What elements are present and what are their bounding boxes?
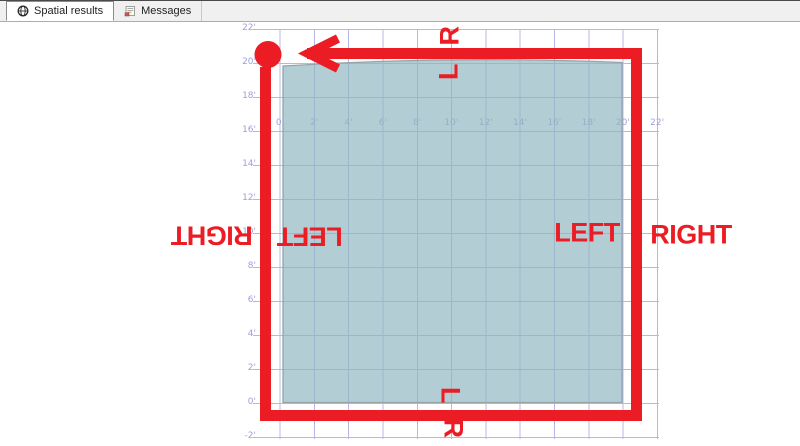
y-axis-label: 6' — [230, 295, 256, 306]
x-axis-label: 10' — [436, 118, 466, 129]
x-axis-label: 20' — [608, 118, 638, 129]
spatial-viewport[interactable]: 0' 2' 4' 6' 8' 10' 12' 14' 16' 18' 20' 2… — [0, 22, 800, 446]
top-inside-letter: L — [436, 64, 463, 80]
spatial-results-window: Spatial results Messages 0' 2' 4' 6' 8' … — [0, 0, 800, 446]
right-outside-label: RIGHT — [650, 222, 732, 249]
y-axis-label: 12' — [230, 193, 256, 204]
top-outside-letter: R — [437, 27, 464, 46]
messages-icon — [124, 5, 136, 17]
x-axis-label: 14' — [505, 118, 535, 129]
bottom-outside-letter: R — [440, 419, 467, 438]
x-axis-label: 2' — [299, 118, 329, 129]
y-axis-label: 22' — [230, 23, 256, 34]
x-axis-label: 4' — [334, 118, 364, 129]
right-inside-label: LEFT — [554, 220, 620, 247]
x-axis-label: 6' — [368, 118, 398, 129]
x-axis-label: 12' — [471, 118, 501, 129]
x-axis-label: 8' — [402, 118, 432, 129]
tab-label: Spatial results — [34, 5, 103, 17]
tab-label: Messages — [141, 5, 191, 17]
y-axis-label: 0' — [230, 397, 256, 408]
y-axis-label: 20' — [230, 57, 256, 68]
y-axis-label: 16' — [230, 125, 256, 136]
left-inside-label: LEFT — [277, 223, 343, 250]
y-axis-label: 4' — [230, 329, 256, 340]
tab-spatial-results[interactable]: Spatial results — [6, 1, 114, 21]
globe-icon — [17, 5, 29, 17]
x-axis-label: 22' — [642, 118, 672, 129]
results-tab-strip: Spatial results Messages — [0, 0, 800, 22]
x-axis-label: 18' — [574, 118, 604, 129]
y-axis-label: 14' — [230, 159, 256, 170]
bottom-inside-letter: L — [437, 387, 464, 403]
y-axis-label: -2' — [230, 431, 256, 442]
x-axis-label: 0' — [265, 118, 295, 129]
tab-messages[interactable]: Messages — [114, 1, 202, 21]
y-axis-label: 18' — [230, 91, 256, 102]
y-axis-label: 8' — [230, 261, 256, 272]
y-axis-label: 2' — [230, 363, 256, 374]
x-axis-label: 16' — [539, 118, 569, 129]
left-outside-label: RIGHT — [171, 222, 253, 249]
